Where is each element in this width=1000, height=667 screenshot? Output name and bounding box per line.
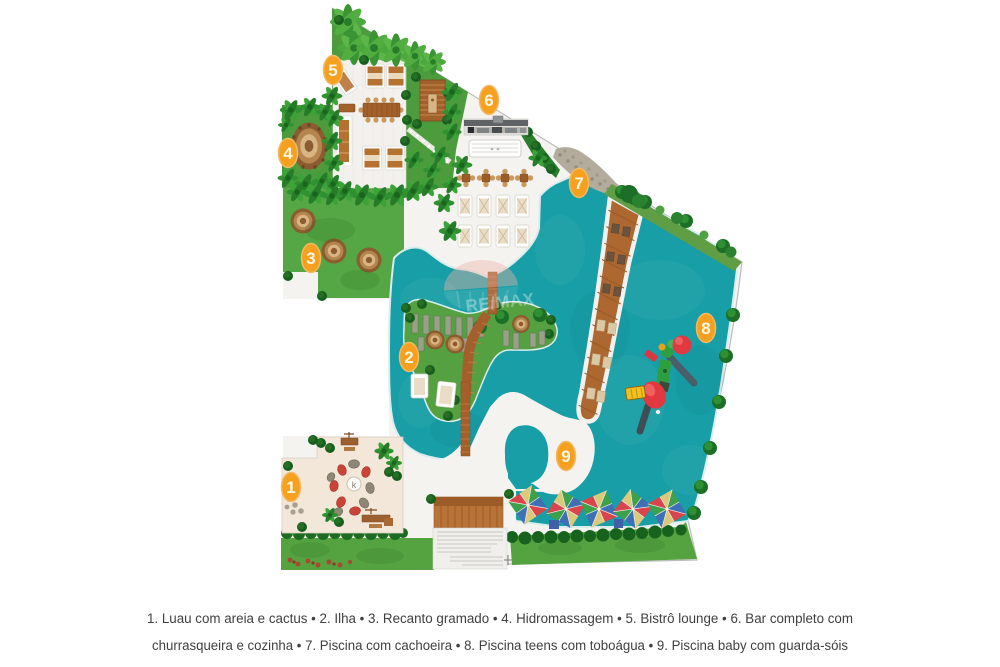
svg-text:6: 6 <box>484 91 493 110</box>
svg-text:1. Luau com areia e cactus • 2: 1. Luau com areia e cactus • 2. Ilha • 3… <box>147 611 853 626</box>
svg-text:1: 1 <box>286 478 295 497</box>
svg-text:9: 9 <box>561 447 570 466</box>
svg-text:k: k <box>352 480 357 490</box>
svg-text:5: 5 <box>328 61 337 80</box>
svg-text:7: 7 <box>574 174 583 193</box>
svg-text:8: 8 <box>701 319 710 338</box>
svg-text:4: 4 <box>283 144 293 163</box>
svg-text:3: 3 <box>306 249 315 268</box>
svg-text:2: 2 <box>404 348 413 367</box>
svg-text:churrasqueira e cozinha • 7. P: churrasqueira e cozinha • 7. Piscina com… <box>152 638 848 653</box>
